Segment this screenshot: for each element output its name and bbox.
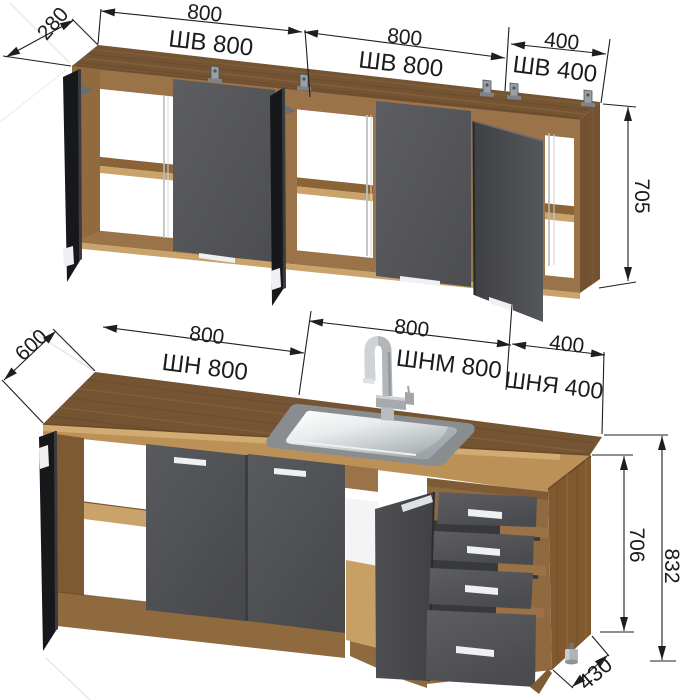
svg-text:706: 706 <box>625 527 648 562</box>
svg-text:832: 832 <box>660 548 682 583</box>
svg-text:705: 705 <box>630 178 653 213</box>
svg-text:800: 800 <box>393 315 430 342</box>
svg-text:800: 800 <box>188 322 226 349</box>
svg-text:800: 800 <box>186 0 223 27</box>
svg-text:400: 400 <box>543 28 580 55</box>
svg-text:800: 800 <box>386 24 423 51</box>
svg-text:400: 400 <box>548 331 585 358</box>
